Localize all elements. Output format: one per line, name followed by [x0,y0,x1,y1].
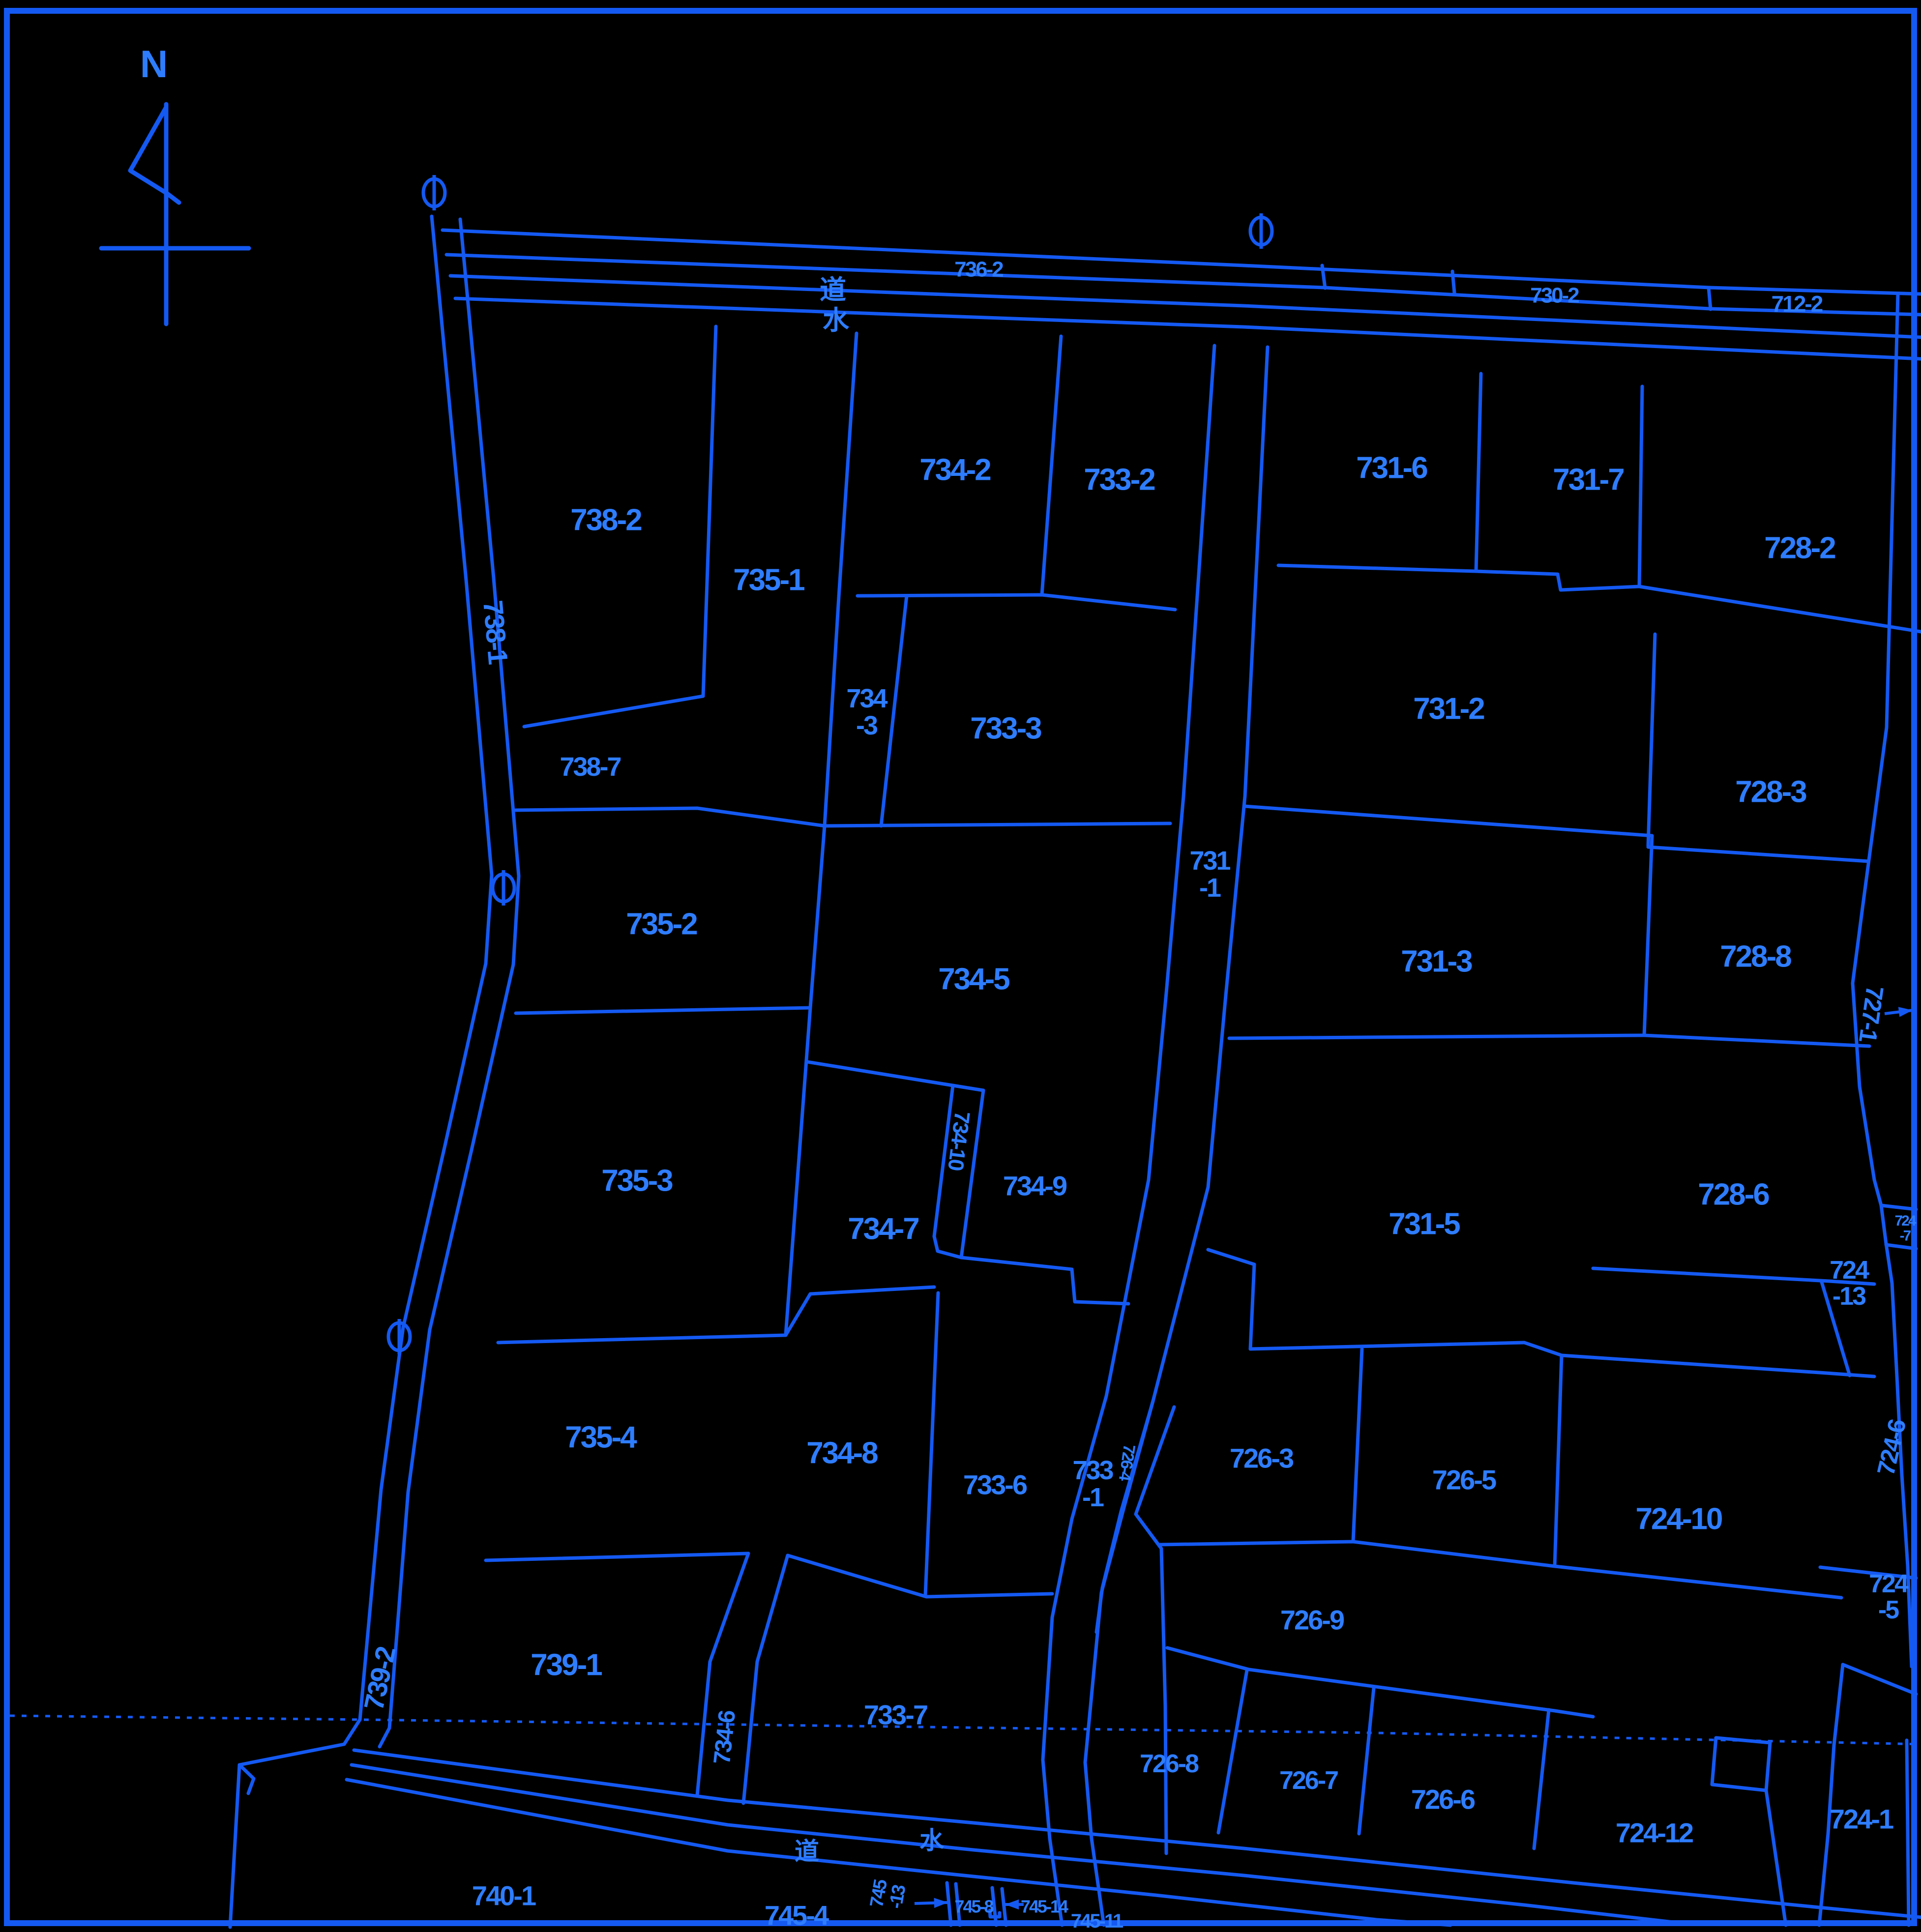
parcel-label-738-1: 738-1 [477,599,514,665]
parcel-label-745-8: 745-8 [954,1897,993,1917]
parcel-label-745-11: 745-11 [1071,1910,1123,1932]
parcel-label-734-5: 734-5 [938,963,1009,996]
road-kanji-label: 道 [820,275,846,305]
parcel-label-745-4: 745-4 [765,1900,829,1931]
parcel-label-734-2: 734-2 [919,453,990,487]
parcel-boundary-line [825,823,1170,826]
parcel-label-726-6: 726-6 [1411,1784,1475,1815]
cadastral-map-canvas: N 736-2730-2712-2道水738-2735-1734-2733-27… [0,0,1921,1932]
parcel-boundary-line [1709,288,1711,309]
parcel-label-726-8: 726-8 [1140,1750,1199,1778]
road-kanji-label: 水 [919,1827,945,1854]
parcel-label-731-3: 731-3 [1401,945,1472,979]
parcel-label-733-2: 733-2 [1084,463,1154,497]
parcel-label-712-2: 712-2 [1772,291,1823,317]
parcel-boundary-line [1907,1740,1909,1925]
parcel-label-736-2: 736-2 [954,258,1003,282]
parcel-label-734-6: 734-6 [709,1709,740,1765]
parcel-label-731-2: 731-2 [1413,692,1484,726]
parcel-label-738-2: 738-2 [570,503,641,537]
parcel-boundary-line [1452,271,1454,293]
parcel-label-724-13: 724-13 [1830,1256,1869,1311]
parcel-label-734-9: 734-9 [1003,1171,1067,1201]
parcel-label-740-1: 740-1 [472,1880,536,1911]
parcel-label-733-6: 733-6 [963,1469,1027,1500]
parcel-label-731-5: 731-5 [1389,1207,1460,1241]
parcel-label-733-3: 733-3 [970,712,1041,746]
parcel-label-738-7: 738-7 [560,752,621,782]
parcel-label-734-7: 734-7 [848,1212,918,1246]
parcel-label-730-2: 730-2 [1530,284,1579,308]
parcel-label-728-3: 728-3 [1735,775,1806,809]
parcel-label-726-3: 726-3 [1230,1443,1294,1474]
parcel-label-735-1: 735-1 [733,563,804,597]
parcel-label-728-6: 728-6 [1698,1178,1769,1212]
parcel-label-726-7: 726-7 [1279,1766,1338,1795]
parcel-label-735-4: 735-4 [565,1421,637,1455]
parcel-label-735-2: 735-2 [626,907,697,941]
parcel-label-724-12: 724-12 [1616,1817,1693,1848]
parcel-label-734-8: 734-8 [806,1436,878,1470]
parcel-label-735-3: 735-3 [601,1164,673,1198]
north-label: N [140,42,168,86]
parcel-label-724-1: 724-1 [1830,1804,1893,1835]
parcel-label-731-6: 731-6 [1356,451,1427,485]
road-kanji-label: 水 [823,306,850,335]
parcel-label-739-1: 739-1 [531,1648,602,1682]
parcel-label-733-7: 733-7 [864,1699,927,1730]
parcel-label-726-9: 726-9 [1280,1605,1344,1636]
parcel-label-728-8: 728-8 [1720,940,1791,974]
road-kanji-label: 道 [795,1838,819,1865]
parcel-label-724-10: 724-10 [1635,1502,1722,1536]
parcel-label-726-5: 726-5 [1432,1464,1496,1495]
parcel-label-745-14: 745-14 [1021,1897,1068,1917]
parcel-label-731-7: 731-7 [1553,463,1624,497]
parcel-label-728-2: 728-2 [1764,531,1835,565]
